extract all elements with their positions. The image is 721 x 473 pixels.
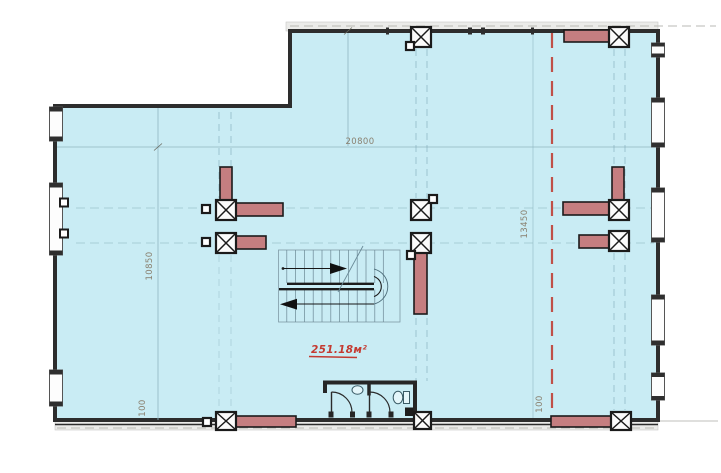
sink-icon xyxy=(352,386,363,394)
toilet-icon xyxy=(393,391,409,403)
dim-offset-right-label: 100 xyxy=(535,395,545,412)
column-icon xyxy=(414,412,431,429)
floor-plan-drawing: 20800 10850 13450 100 100 251.18м² xyxy=(0,0,721,473)
column-icon xyxy=(611,412,631,430)
column-icon xyxy=(609,27,629,47)
dim-width-label: 20800 xyxy=(345,137,374,147)
column-icon xyxy=(609,231,629,251)
column-icon xyxy=(216,412,236,430)
area-label: 251.18м² xyxy=(311,344,367,356)
column-icon xyxy=(216,200,236,220)
column-icon xyxy=(609,200,629,220)
floor-slab xyxy=(55,31,658,425)
area-label-group: 251.18м² xyxy=(309,344,367,358)
floor-plan-canvas: 20800 10850 13450 100 100 251.18м² xyxy=(0,0,721,473)
wc-corner-block xyxy=(405,408,414,417)
dim-right-height-label: 13450 xyxy=(520,209,530,238)
dim-left-height-label: 10850 xyxy=(145,251,155,280)
dim-offset-left-label: 100 xyxy=(138,399,148,416)
column-icon xyxy=(216,233,236,253)
